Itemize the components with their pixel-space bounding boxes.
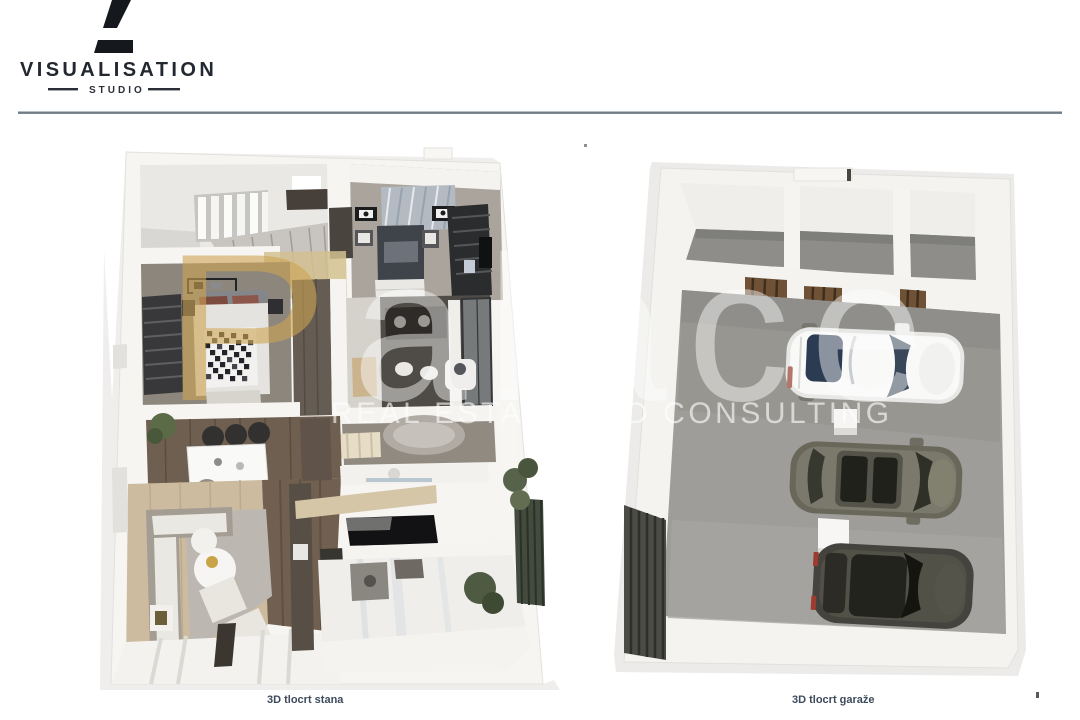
svg-text:P: P bbox=[162, 210, 330, 445]
svg-text:3D tlocrt stana: 3D tlocrt stana bbox=[267, 694, 344, 706]
svg-text:REAL ESTATE AND CONSULTING: REAL ESTATE AND CONSULTING bbox=[331, 397, 893, 430]
svg-text:VISUALISATION: VISUALISATION bbox=[20, 59, 217, 81]
svg-text:STUDIO: STUDIO bbox=[89, 85, 145, 96]
svg-text:3D tlocrt garaže: 3D tlocrt garaže bbox=[792, 694, 875, 706]
